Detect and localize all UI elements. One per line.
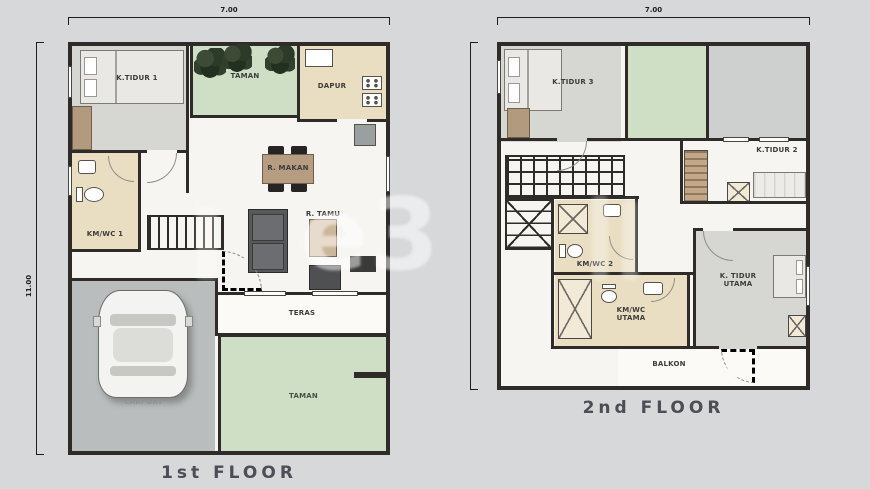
- dimension-line: [68, 17, 390, 25]
- car-windshield: [110, 314, 176, 326]
- door-arc-icon: [147, 153, 177, 183]
- window-icon: [68, 66, 72, 98]
- side-table-icon: [788, 315, 806, 337]
- wall: [733, 228, 806, 231]
- room-label-carport: CARPORT: [72, 398, 215, 406]
- wall: [587, 138, 625, 141]
- dimension-line: [497, 17, 810, 25]
- pillow-icon: [508, 83, 520, 103]
- bed-icon: [753, 172, 806, 198]
- wardrobe-icon: [72, 106, 92, 150]
- window-icon: [68, 166, 72, 196]
- window-icon: [723, 137, 749, 142]
- chair-icon: [291, 183, 307, 192]
- room-void-garden: [628, 46, 706, 138]
- armchair-icon: [309, 265, 341, 290]
- stairs-icon: [505, 199, 553, 250]
- stove-icon: [362, 93, 382, 107]
- room-label-balcony: BALKON: [626, 360, 712, 368]
- floor1-title: 1st FLOOR: [68, 463, 390, 483]
- wall: [186, 46, 189, 193]
- dimension-top-floor2: 7.00: [497, 6, 810, 28]
- toilet-icon: [559, 244, 566, 258]
- wall: [72, 249, 141, 252]
- floor2-title: 2nd FLOOR: [497, 398, 810, 418]
- wall: [215, 278, 218, 336]
- car-mirror: [93, 316, 101, 327]
- window-icon: [806, 266, 810, 306]
- bed-icon: [773, 255, 806, 298]
- wall: [367, 119, 386, 122]
- wall: [72, 278, 218, 281]
- wall: [706, 46, 709, 138]
- pillow-icon: [796, 279, 803, 294]
- room-label-bedroom1: K.TIDUR 1: [92, 74, 182, 82]
- wall: [501, 138, 557, 141]
- kitchen-counter-icon: [305, 49, 333, 67]
- car-rear-window: [110, 366, 176, 376]
- wall: [551, 272, 693, 275]
- room-label-living: R. TAMU: [295, 210, 351, 218]
- wall: [190, 46, 193, 118]
- wall: [190, 115, 300, 118]
- coffee-table-icon: [309, 219, 337, 257]
- room-label-dining: R. MAKAN: [252, 164, 324, 172]
- sink-icon: [78, 160, 96, 174]
- toilet-icon: [601, 290, 617, 303]
- wall: [618, 346, 719, 349]
- window-icon: [386, 156, 390, 192]
- dimension-line: [36, 42, 44, 455]
- side-table-icon: [727, 182, 750, 203]
- wall: [297, 46, 300, 122]
- floorplan-canvas: 7.00 7.00 11.00 K.TIDUR 1 TAMAN: [0, 0, 870, 489]
- dimension-label: 11.00: [25, 274, 33, 298]
- toilet-icon: [602, 284, 616, 289]
- room-label-master-bedroom: K. TIDUR UTAMA: [707, 272, 769, 289]
- wall: [687, 272, 690, 349]
- room-label-bathroom2: KM/WC 2: [555, 260, 635, 268]
- room-top-right: [709, 46, 806, 138]
- car-mirror: [185, 316, 193, 327]
- wall: [218, 333, 386, 337]
- sofa-cushion: [252, 214, 284, 241]
- pillow-icon: [508, 57, 520, 77]
- dimension-line: [470, 42, 478, 390]
- dimension-label: 7.00: [68, 6, 390, 14]
- room-label-kitchen: DAPUR: [304, 82, 360, 90]
- shower-icon: [558, 204, 588, 234]
- wall: [625, 46, 628, 141]
- stove-icon: [362, 76, 382, 90]
- window-icon: [497, 60, 501, 94]
- dimension-left-floor2: [462, 42, 480, 390]
- room-label-garden-top: TAMAN: [193, 72, 297, 80]
- room-label-bedroom3: K.TIDUR 3: [527, 78, 619, 86]
- floor2-plan: K.TIDUR 3 K.TIDUR 2 KM/WC 2 KM/WC UTAMA …: [497, 42, 810, 390]
- wall: [297, 119, 337, 122]
- floor1-plan: K.TIDUR 1 TAMAN DAPUR R. MAKAN R. TAMU: [68, 42, 390, 455]
- toilet-icon: [567, 244, 583, 258]
- wall: [680, 141, 683, 203]
- stairs-icon: [147, 215, 224, 250]
- dimension-left-floor1: 11.00: [26, 42, 48, 455]
- room-label-bedroom2: K.TIDUR 2: [737, 146, 817, 154]
- room-label-master-bathroom: KM/WC UTAMA: [605, 306, 657, 323]
- window-icon: [244, 291, 286, 296]
- pillow-icon: [84, 57, 97, 75]
- sink-icon: [603, 204, 621, 217]
- window-icon: [759, 137, 789, 142]
- dimension-top-floor1: 7.00: [68, 6, 390, 28]
- pillow-icon: [796, 260, 803, 275]
- wall: [177, 150, 189, 153]
- wall: [693, 228, 696, 349]
- fridge-icon: [354, 124, 376, 146]
- sofa-icon: [248, 209, 288, 273]
- wall: [218, 337, 221, 451]
- wall: [680, 201, 806, 204]
- window-icon: [312, 291, 358, 296]
- wall: [551, 196, 639, 199]
- toilet-icon: [84, 187, 104, 202]
- room-label-garden-bottom: TAMAN: [221, 392, 386, 400]
- room-label-bathroom1: KM/WC 1: [72, 230, 138, 238]
- wall: [757, 346, 806, 349]
- dimension-label: 7.00: [497, 6, 810, 14]
- wall: [138, 153, 141, 252]
- car-roof: [113, 328, 173, 362]
- wardrobe-icon: [507, 108, 530, 138]
- toilet-icon: [76, 187, 83, 202]
- car-icon: [98, 290, 188, 398]
- wall: [551, 346, 619, 349]
- gate-icon: [354, 372, 386, 378]
- plant-icon: [265, 46, 295, 74]
- plant-icon: [222, 44, 252, 72]
- shower-icon: [558, 279, 592, 339]
- sofa-cushion: [252, 243, 284, 270]
- tv-console-icon: [350, 256, 376, 272]
- chair-icon: [268, 183, 284, 192]
- wall: [72, 150, 147, 153]
- wall: [635, 199, 638, 275]
- wardrobe-icon: [684, 150, 708, 203]
- room-label-terrace: TERAS: [218, 309, 386, 317]
